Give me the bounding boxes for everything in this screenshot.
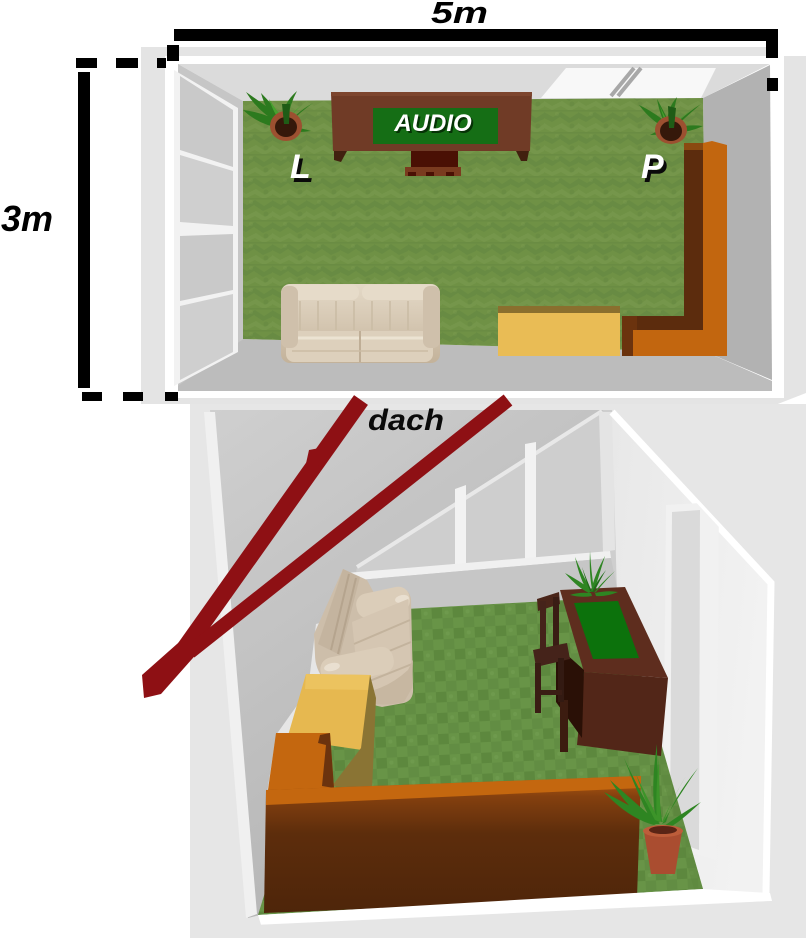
svg-text:P: P <box>641 148 664 186</box>
svg-text:dach: dach <box>368 404 444 437</box>
svg-text:5m: 5m <box>431 0 488 30</box>
svg-text:L: L <box>290 148 311 186</box>
svg-text:3m: 3m <box>1 198 53 239</box>
svg-text:AUDIO: AUDIO <box>393 110 472 137</box>
